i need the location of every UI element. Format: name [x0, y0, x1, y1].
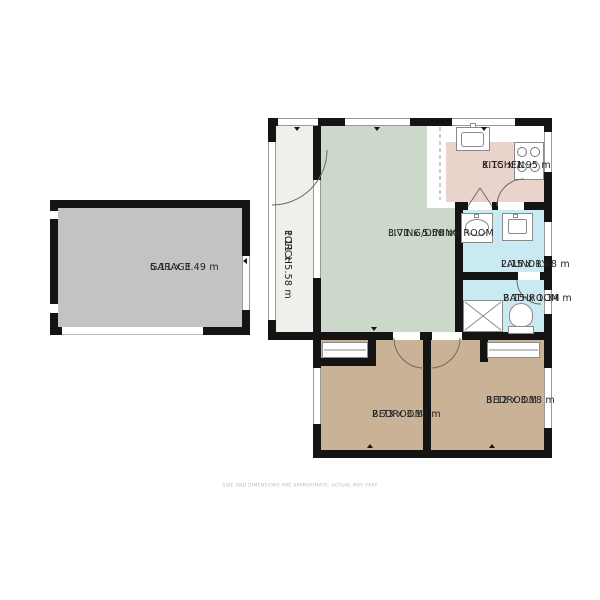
laundry-sink-tap	[513, 214, 518, 218]
wall	[268, 118, 276, 142]
wall-marker	[367, 444, 373, 448]
room-dims: 5.11 x 3.49 m	[150, 262, 219, 274]
wall-marker	[243, 258, 247, 264]
wall-marker	[371, 327, 377, 331]
wall	[463, 272, 518, 280]
window	[242, 256, 250, 310]
washbasin-tap	[474, 214, 479, 218]
room-dims: 3.15 x 1.95 m	[482, 160, 551, 172]
wall	[313, 332, 321, 368]
wall-marker	[489, 444, 495, 448]
wall-marker	[374, 127, 380, 131]
wall	[242, 200, 250, 256]
floor-plan: GARAGE 5.11 x 3.49 m PORCH 1.11 x 5.58 m…	[0, 0, 600, 600]
wall	[544, 118, 552, 132]
garage-door-opening	[62, 327, 203, 335]
porch-screen-window	[268, 142, 276, 320]
wall-opening	[50, 211, 58, 219]
wall	[321, 332, 393, 340]
wall	[313, 126, 321, 180]
wall	[420, 332, 432, 340]
window	[313, 368, 321, 424]
porch-floor	[276, 126, 313, 332]
room-dims: 2.73 x 3.18 m	[372, 409, 441, 421]
closet	[322, 342, 368, 358]
room-dims: 3.12 x 3.18 m	[486, 395, 555, 407]
wall	[455, 202, 468, 210]
wall	[462, 332, 552, 340]
disclaimer-text: SIZE AND DIMENSIONS ARE APPROXIMATE, ACT…	[222, 484, 377, 489]
wall	[544, 172, 552, 222]
living-room-floor-upper	[321, 126, 427, 208]
window	[278, 118, 318, 126]
burner-icon	[517, 147, 527, 157]
wall	[524, 202, 544, 210]
wall	[313, 450, 552, 458]
room-dims: 2.15 x 1.48 m	[501, 259, 570, 271]
wall	[313, 278, 321, 332]
window	[345, 118, 410, 126]
shower-icon	[463, 300, 503, 332]
wall	[203, 327, 250, 335]
wall	[321, 358, 376, 366]
room-dims: 2.15 x 1.34 m	[503, 293, 572, 305]
window	[544, 222, 552, 256]
wall	[318, 118, 345, 126]
wall-opening	[50, 304, 58, 313]
toilet-icon	[509, 303, 533, 327]
burner-icon	[530, 147, 540, 157]
wall-marker	[481, 127, 487, 131]
wall-marker	[145, 202, 151, 206]
wall	[540, 272, 544, 280]
wall	[423, 340, 431, 450]
wall	[50, 327, 62, 335]
closet	[487, 342, 540, 358]
wall	[544, 314, 552, 368]
kitchen-sink-basin	[461, 132, 484, 147]
wall	[492, 202, 498, 210]
window	[313, 180, 321, 278]
window	[452, 118, 515, 126]
room-dims: 1.11 x 5.58 m	[281, 230, 293, 299]
living-room-floor-lower	[321, 208, 455, 332]
laundry-sink-basin	[508, 219, 527, 234]
wall	[410, 118, 452, 126]
wall-marker	[52, 258, 56, 264]
toilet-tank	[508, 326, 534, 334]
wall-marker	[294, 127, 300, 131]
kitchen-sink-tap	[470, 123, 476, 128]
wall	[50, 200, 58, 335]
room-dims: 3.71 x 5.58 m	[388, 228, 457, 240]
